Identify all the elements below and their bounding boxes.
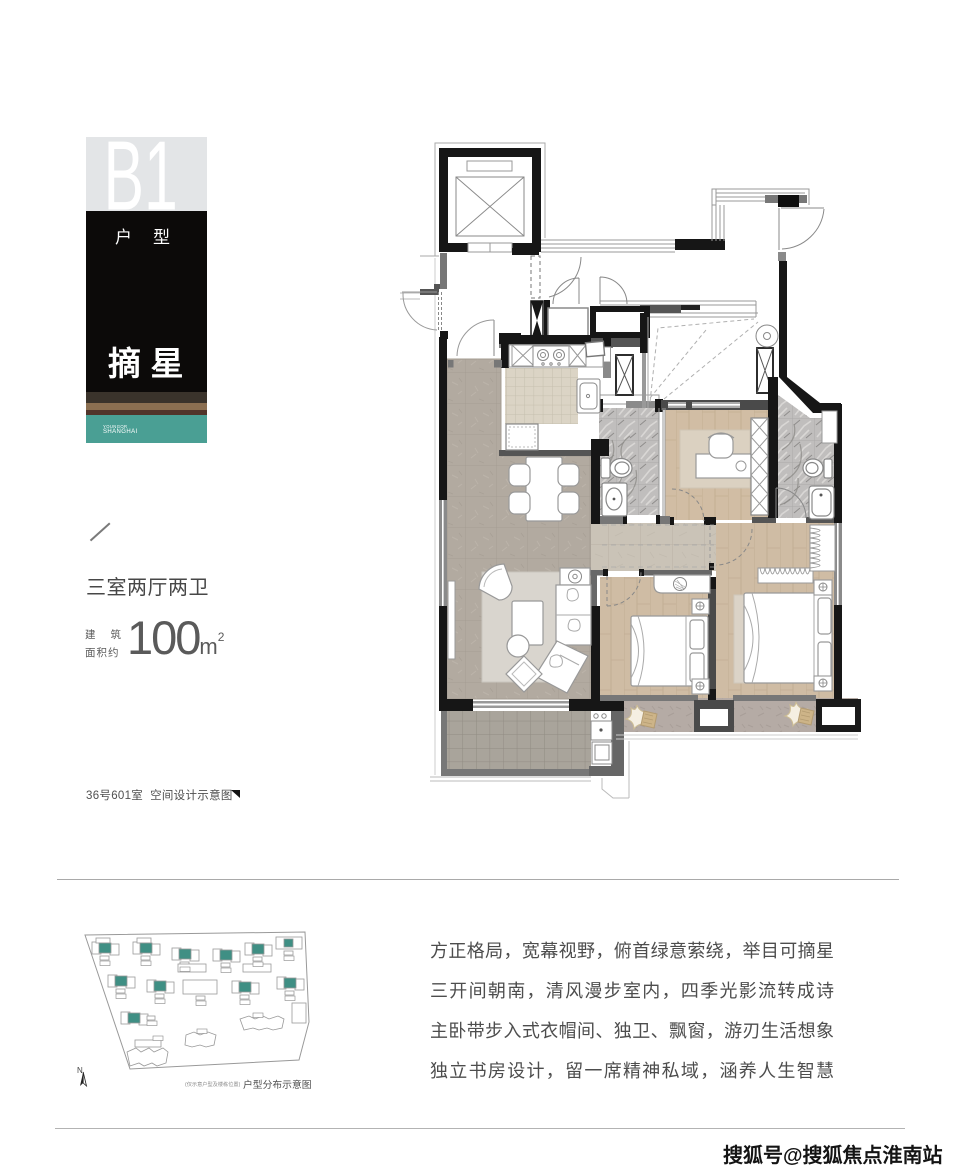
svg-text:户型分布示意图: 户型分布示意图 <box>243 1078 312 1091</box>
svg-text:B1: B1 <box>104 137 178 211</box>
svg-text:N: N <box>77 1066 83 1075</box>
svg-text:(仅示意户型及楼栋位置): (仅示意户型及楼栋位置) <box>185 1080 241 1088</box>
